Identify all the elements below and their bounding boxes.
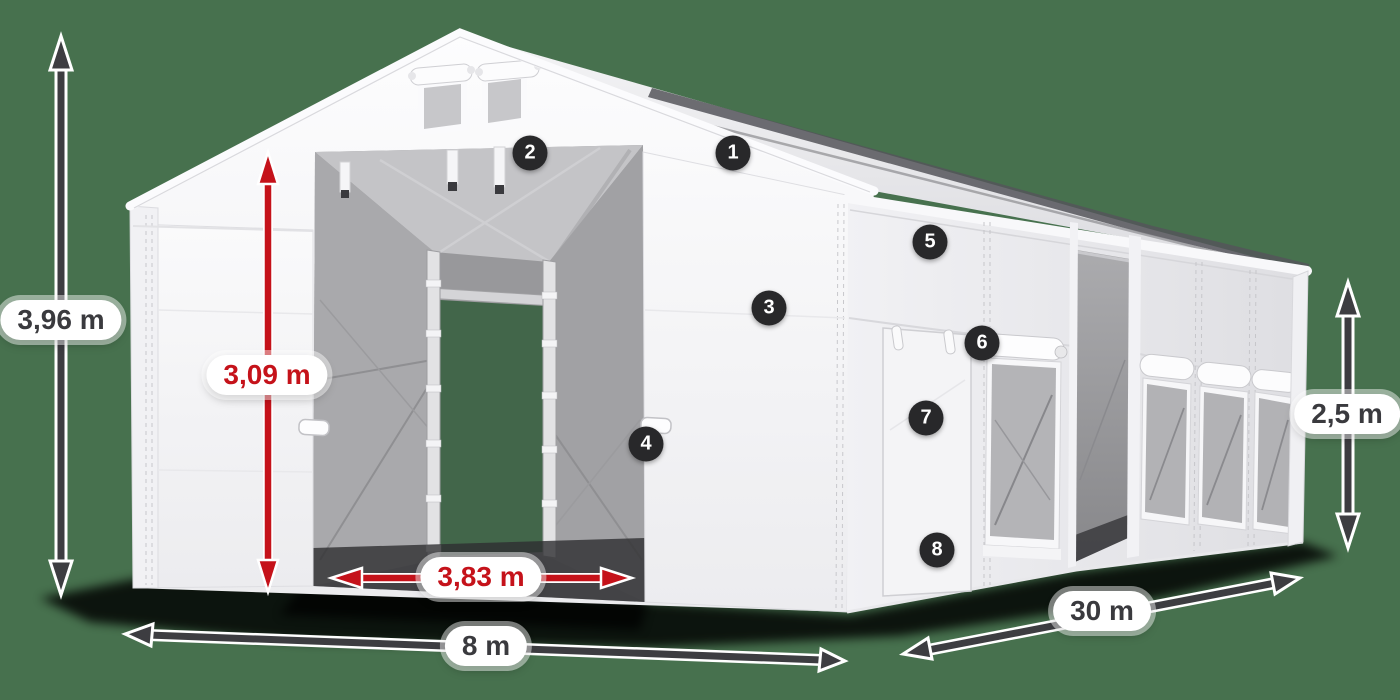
rear-door-post-left [426, 250, 441, 562]
seam-band [1127, 235, 1141, 558]
dimension-label-tent-length: 30 m [1053, 591, 1151, 631]
callout-7: 7 [909, 401, 944, 436]
side-doorway-open [1075, 250, 1130, 562]
rear-door-post-right [542, 260, 557, 558]
callout-5: 5 [913, 225, 948, 260]
side-window-3 [1196, 361, 1252, 530]
side-window-1 [982, 333, 1067, 560]
callout-8: 8 [920, 533, 955, 568]
dimension-label-total-height: 3,96 m [0, 300, 121, 340]
front-door-right-leaf [641, 152, 851, 612]
gable-window-left [408, 63, 475, 135]
rear-opening [440, 300, 545, 556]
entrance-opening [313, 145, 645, 602]
dimension-label-entrance-width: 3,83 m [420, 557, 541, 597]
callout-4: 4 [629, 427, 664, 462]
door-handle-left [299, 419, 330, 436]
dimension-label-side-height: 2,5 m [1294, 394, 1400, 434]
callout-1: 1 [716, 136, 751, 171]
callout-3: 3 [752, 291, 787, 326]
callout-6: 6 [965, 326, 1000, 361]
tent-dimensions-illustration: 3,96 m 3,09 m 3,83 m 8 m 30 m 2,5 m 1 2 … [0, 0, 1400, 700]
dimension-label-tent-width: 8 m [445, 626, 527, 666]
tent-drawing [0, 0, 1400, 700]
dimension-label-entrance-height: 3,09 m [206, 355, 327, 395]
front-door-left-leaf [130, 206, 329, 588]
callout-2: 2 [513, 136, 548, 171]
